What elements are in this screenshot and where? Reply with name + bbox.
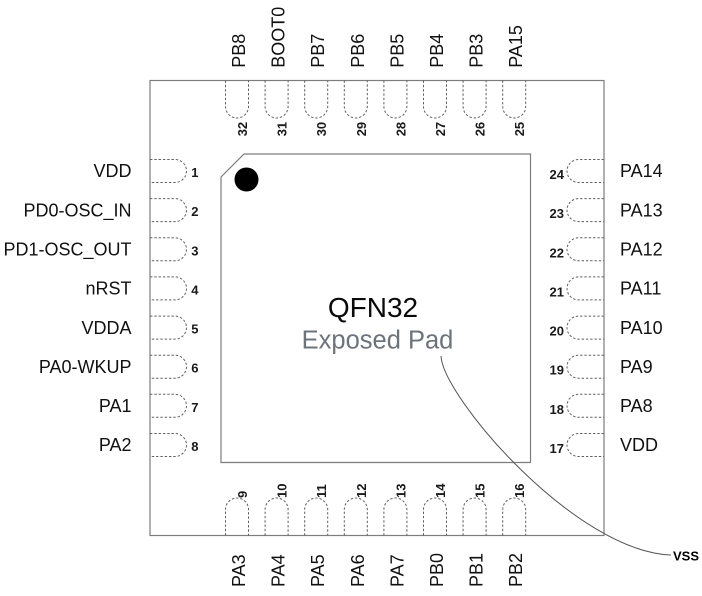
svg-text:PB0: PB0 (427, 553, 447, 587)
svg-text:PB6: PB6 (348, 34, 368, 68)
svg-text:30: 30 (314, 122, 329, 136)
svg-text:32: 32 (235, 122, 250, 136)
svg-text:PB4: PB4 (427, 34, 447, 68)
svg-text:PA15: PA15 (506, 25, 526, 68)
svg-text:27: 27 (433, 122, 448, 136)
svg-text:PB8: PB8 (229, 34, 249, 68)
svg-text:16: 16 (512, 484, 527, 498)
svg-text:PA13: PA13 (620, 200, 663, 220)
svg-text:18: 18 (550, 402, 564, 417)
svg-text:PA6: PA6 (348, 554, 368, 587)
svg-text:PB3: PB3 (467, 34, 487, 68)
svg-text:5: 5 (191, 322, 198, 337)
svg-text:22: 22 (550, 245, 564, 260)
svg-text:VDDA: VDDA (81, 318, 131, 338)
svg-text:26: 26 (473, 122, 488, 136)
svg-text:20: 20 (550, 324, 564, 339)
svg-text:PD0-OSC_IN: PD0-OSC_IN (23, 200, 131, 221)
svg-text:PA2: PA2 (99, 435, 132, 455)
svg-text:3: 3 (191, 243, 198, 258)
svg-text:15: 15 (473, 484, 488, 498)
svg-text:VDD: VDD (620, 435, 658, 455)
svg-text:PA14: PA14 (620, 161, 663, 181)
svg-text:6: 6 (191, 361, 198, 376)
svg-text:nRST: nRST (85, 279, 131, 299)
svg-text:13: 13 (393, 484, 408, 498)
svg-text:10: 10 (275, 484, 290, 498)
svg-text:25: 25 (512, 122, 527, 136)
svg-text:PA9: PA9 (620, 357, 653, 377)
svg-text:21: 21 (550, 284, 564, 299)
svg-text:9: 9 (235, 491, 250, 498)
svg-text:24: 24 (550, 167, 565, 182)
svg-text:PA8: PA8 (620, 396, 653, 416)
svg-text:PA4: PA4 (269, 554, 289, 587)
svg-text:PA5: PA5 (308, 554, 328, 587)
svg-text:7: 7 (191, 400, 198, 415)
svg-text:PB1: PB1 (467, 553, 487, 587)
svg-text:31: 31 (275, 122, 290, 136)
svg-text:PB5: PB5 (387, 34, 407, 68)
svg-text:1: 1 (191, 165, 198, 180)
svg-text:11: 11 (314, 484, 329, 498)
svg-text:19: 19 (550, 363, 564, 378)
svg-text:PA0-WKUP: PA0-WKUP (39, 357, 132, 377)
svg-text:PA11: PA11 (620, 279, 661, 299)
svg-text:PA7: PA7 (387, 554, 407, 587)
svg-text:PB7: PB7 (308, 34, 328, 68)
svg-text:PA12: PA12 (620, 240, 663, 260)
svg-text:4: 4 (191, 282, 199, 297)
svg-text:12: 12 (354, 484, 369, 498)
svg-text:PB2: PB2 (506, 553, 526, 587)
svg-text:28: 28 (393, 122, 408, 136)
svg-text:QFN32: QFN32 (328, 292, 418, 323)
svg-text:2: 2 (191, 204, 198, 219)
svg-text:17: 17 (550, 441, 564, 456)
svg-text:PA1: PA1 (99, 396, 132, 416)
svg-text:8: 8 (191, 439, 198, 454)
svg-text:PA3: PA3 (229, 554, 249, 587)
svg-text:29: 29 (354, 122, 369, 136)
svg-text:BOOT0: BOOT0 (269, 7, 289, 68)
svg-text:VDD: VDD (93, 161, 131, 181)
svg-text:VSS: VSS (673, 549, 699, 564)
svg-text:23: 23 (550, 206, 564, 221)
svg-text:Exposed Pad: Exposed Pad (302, 327, 454, 355)
svg-text:PD1-OSC_OUT: PD1-OSC_OUT (3, 240, 131, 261)
svg-text:PA10: PA10 (620, 318, 663, 338)
svg-text:14: 14 (433, 483, 448, 498)
